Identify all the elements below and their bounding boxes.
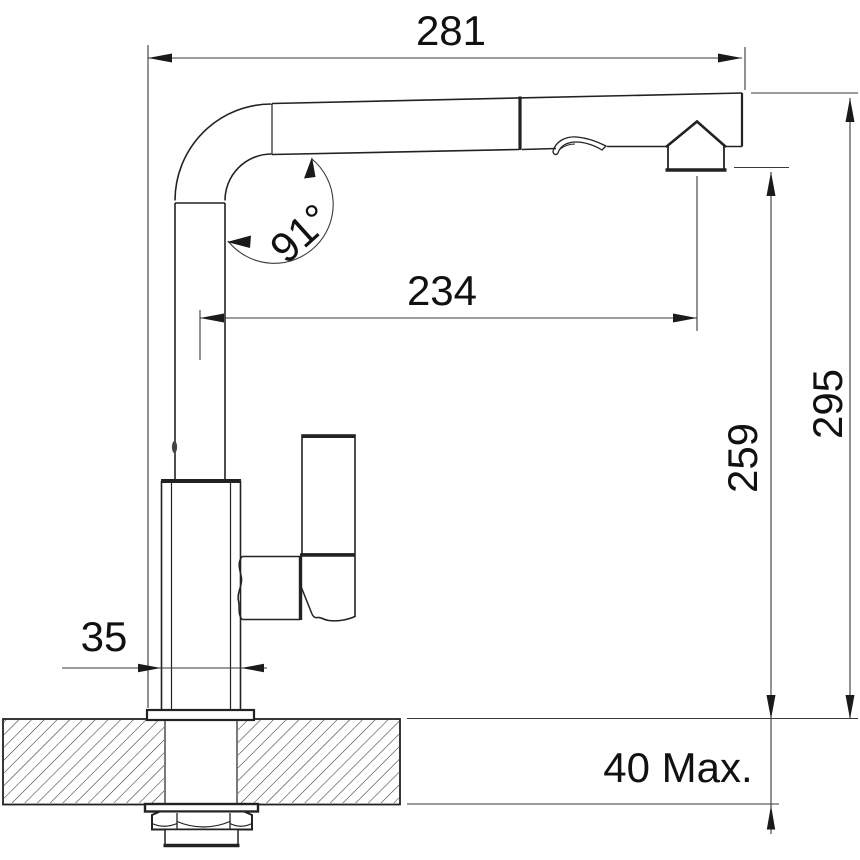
elbow-inner-curve	[225, 154, 272, 201]
dim-295-arrow-top	[846, 98, 855, 122]
handle-base-diagonal	[300, 584, 318, 618]
handle-base-block	[318, 555, 356, 621]
washer	[145, 804, 258, 812]
dimension-swivel-angle: 91°	[227, 157, 340, 272]
countertop-section	[3, 719, 400, 805]
pipe-detail-mark	[172, 441, 177, 453]
spray-release-clip	[553, 137, 606, 155]
dimension-outlet-height: 259	[719, 168, 789, 720]
dim-40-label: 40 Max.	[603, 744, 752, 791]
aerator-nozzle-top	[666, 122, 726, 148]
handle-connector	[238, 557, 300, 620]
dim-91-arrow-left	[227, 236, 251, 249]
base-plate	[147, 710, 254, 720]
dim-234-arrow-left	[200, 314, 224, 323]
faucet-dimension-diagram-page: 281 91° 234 259 295 35	[0, 0, 860, 860]
dim-259-arrow-bottom	[767, 695, 776, 719]
countertop-hatch-right	[238, 720, 399, 803]
dim-234-arrow-right	[673, 314, 697, 323]
dim-259-label: 259	[719, 423, 766, 493]
dim-281-arrow-left	[148, 54, 172, 63]
body-outer-edges	[162, 481, 241, 710]
body-inner-edges	[172, 483, 231, 710]
dim-281-label: 281	[416, 7, 486, 54]
dim-91-label: 91°	[261, 195, 340, 272]
shank-end	[165, 830, 238, 846]
dimension-deck-thickness: 40 Max.	[407, 719, 858, 835]
mounting-hardware	[145, 804, 258, 846]
countertop-hatch-left	[4, 720, 164, 803]
dim-40-arrow-bottom	[767, 806, 775, 830]
spout-bottom-edge	[272, 150, 519, 155]
dim-35-arrow-right	[241, 664, 264, 672]
mounting-shank	[165, 720, 237, 804]
dimension-body-width: 35	[62, 613, 267, 672]
dim-234-label: 234	[407, 267, 477, 314]
dim-259-arrow-top	[767, 172, 776, 196]
dim-295-arrow-bottom	[846, 695, 855, 719]
dimension-overall-height: 295	[751, 93, 858, 719]
aerator-nozzle-sides	[668, 146, 724, 169]
dim-295-label: 295	[804, 369, 851, 439]
elbow-outer-curve	[175, 104, 272, 201]
dim-281-extension-lines	[148, 45, 745, 708]
dim-35-arrow-left	[138, 664, 161, 672]
dimension-spout-reach: 234	[200, 176, 697, 360]
handle-lever	[302, 435, 355, 554]
dim-35-label: 35	[81, 613, 128, 660]
dim-281-arrow-right	[718, 54, 742, 63]
spout-top-edge	[272, 93, 742, 104]
faucet-outline	[147, 93, 742, 720]
dimension-overall-reach: 281	[148, 7, 745, 708]
faucet-dimension-diagram: 281 91° 234 259 295 35	[0, 0, 860, 860]
